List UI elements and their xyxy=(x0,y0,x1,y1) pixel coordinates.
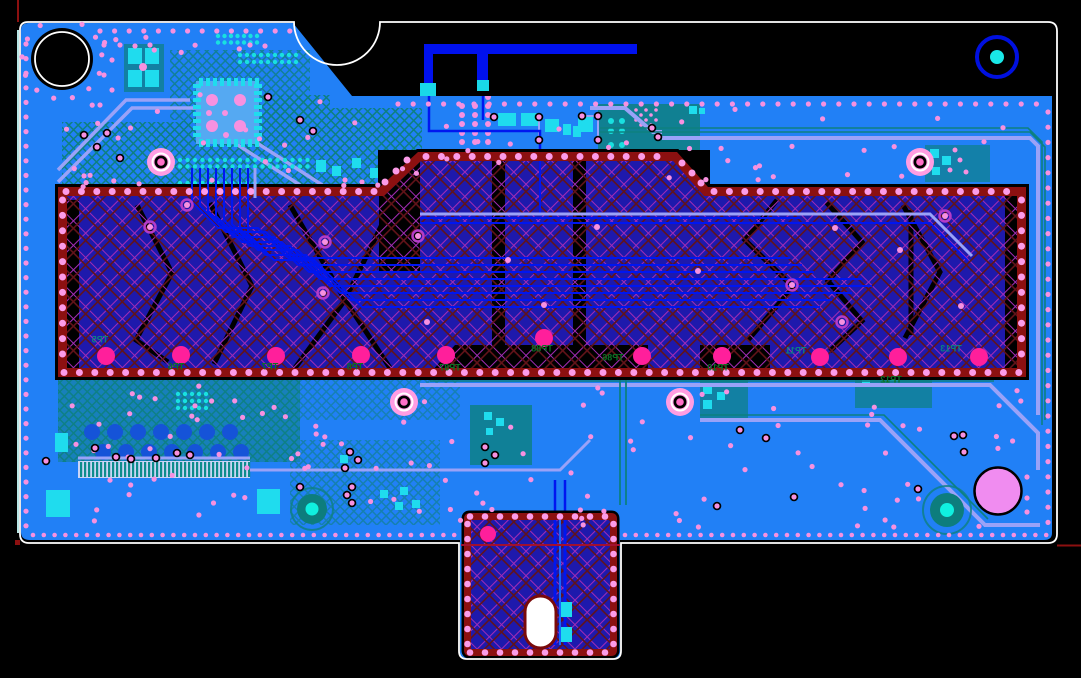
svg-text:TP8: TP8 xyxy=(347,362,364,372)
svg-text:TP5: TP5 xyxy=(92,335,109,345)
svg-text:TP7: TP7 xyxy=(262,362,279,372)
svg-text:TP13: TP13 xyxy=(940,344,962,354)
svg-text:TP87: TP87 xyxy=(439,363,461,373)
svg-text:TP88: TP88 xyxy=(531,344,553,354)
svg-text:TP11: TP11 xyxy=(785,346,806,356)
svg-text:TP6: TP6 xyxy=(168,362,185,372)
svg-text:TP12: TP12 xyxy=(880,375,902,385)
svg-text:TP86: TP86 xyxy=(602,353,624,363)
svg-text:TP10: TP10 xyxy=(707,363,729,373)
